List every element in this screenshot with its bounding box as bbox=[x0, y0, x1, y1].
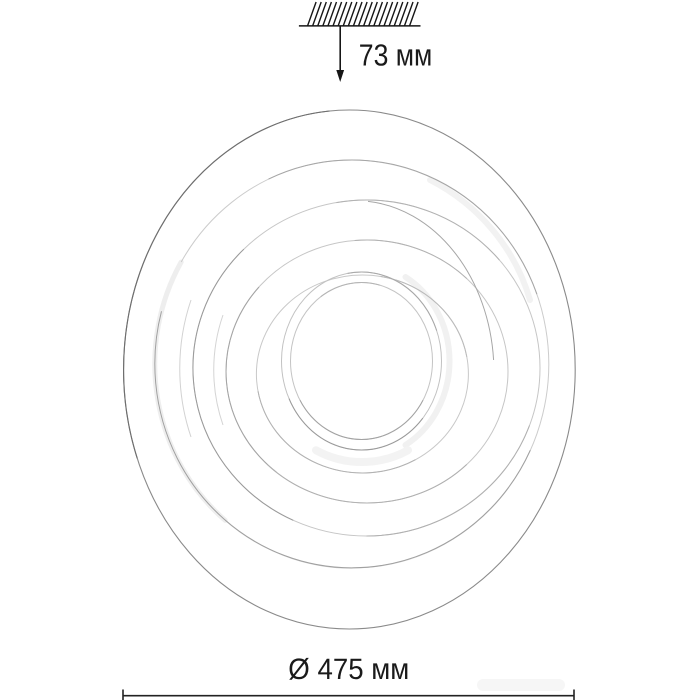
svg-text:73 мм: 73 мм bbox=[359, 38, 433, 72]
svg-text:Ø 475 мм: Ø 475 мм bbox=[288, 653, 409, 686]
